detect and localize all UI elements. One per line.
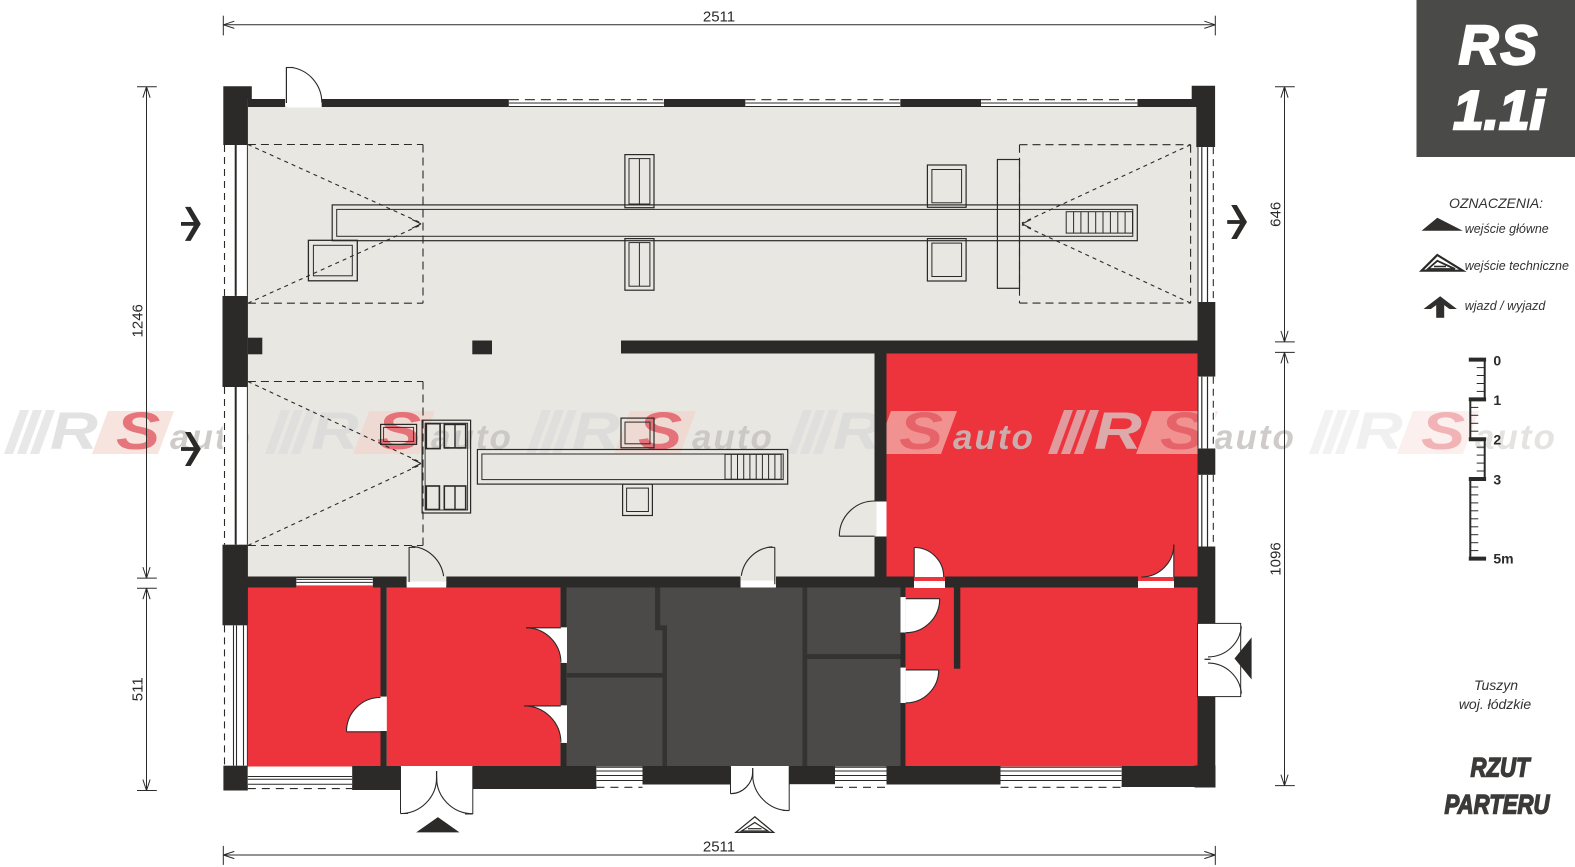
svg-text:2511: 2511 [703,9,735,26]
svg-text:RZUT: RZUT [1471,754,1532,784]
svg-text:0: 0 [1493,353,1501,369]
svg-text:wejście główne: wejście główne [1465,222,1549,236]
svg-text:2: 2 [1493,432,1501,448]
svg-text:wejście techniczne: wejście techniczne [1465,259,1569,273]
svg-text:RS: RS [1459,14,1539,76]
svg-text:OZNACZENIA:: OZNACZENIA: [1449,195,1543,211]
svg-text:3: 3 [1493,472,1501,488]
svg-text:511: 511 [130,677,147,701]
svg-text:wjazd / wyjazd: wjazd / wyjazd [1465,299,1547,313]
svg-text:2511: 2511 [703,839,735,856]
svg-text:PARTERU: PARTERU [1445,791,1551,821]
svg-text:woj. łódzkie: woj. łódzkie [1459,696,1532,712]
svg-text:646: 646 [1268,202,1285,227]
svg-text:1: 1 [1493,392,1501,408]
svg-text:1.1i: 1.1i [1453,79,1546,141]
svg-text:Tuszyn: Tuszyn [1474,677,1518,693]
svg-text:5m: 5m [1493,551,1513,567]
svg-text:1096: 1096 [1268,542,1285,575]
svg-text:1246: 1246 [130,304,147,337]
